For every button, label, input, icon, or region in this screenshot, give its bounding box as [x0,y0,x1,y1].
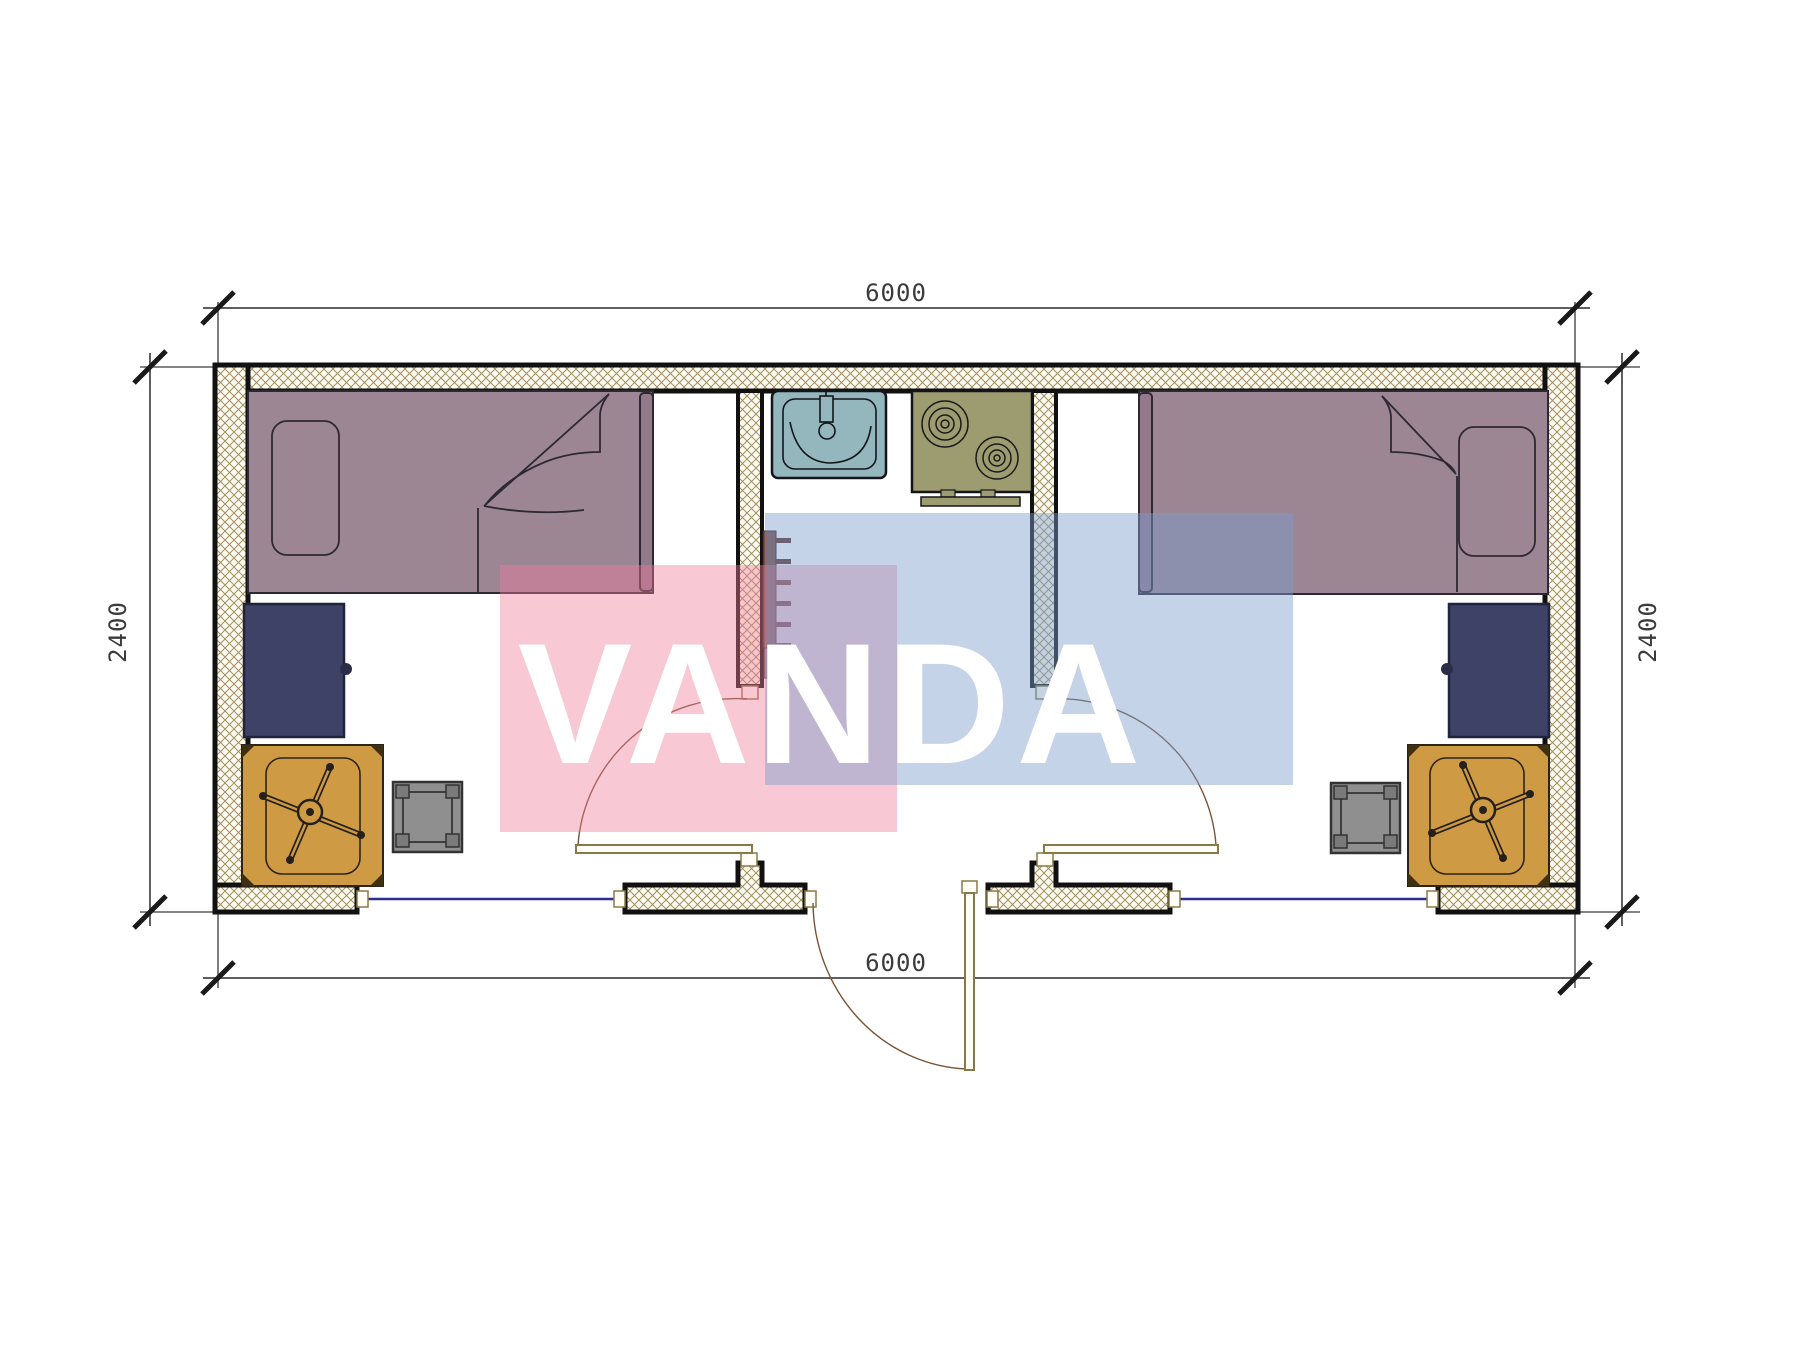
pillow-left [272,421,339,555]
sink-faucet [820,396,833,422]
bed-left [248,391,653,593]
floor-plan: 6000 6000 2400 2400 [0,0,1800,1350]
wall-bottom-right-tee [988,863,1170,912]
cabinet-right-handle [1441,663,1453,675]
cabinet-left-handle [340,663,352,675]
desk-right [1408,745,1549,886]
cabinet-right [1441,604,1549,737]
wall-bottom-left-tee [625,863,805,912]
desk-left [242,745,383,886]
door-leaf-left-room [576,845,752,853]
dimension-label-bottom: 6000 [865,949,927,977]
stove [912,391,1032,506]
cabinet-left [244,604,352,737]
pillow-right [1459,427,1535,556]
watermark-text: VANDA [518,608,1147,800]
stool-right [1331,783,1400,853]
wall-bottom-left-segment [215,885,357,912]
door-leaf-right-room [1044,845,1218,853]
dimension-label-top: 6000 [865,279,927,307]
wall-bottom-right-segment [1438,885,1578,912]
dimension-label-right: 2400 [1634,601,1662,663]
floor-plan-canvas: 6000 6000 2400 2400 [0,0,1800,1350]
stove-control-bar [921,497,1020,506]
dimension-label-left: 2400 [104,601,132,663]
door-arc-entry [813,903,967,1069]
sink [772,391,886,478]
stool-left [393,782,462,852]
bed-left-footboard [640,393,653,591]
wall-top [215,365,1578,391]
door-leaf-entry [965,893,974,1070]
